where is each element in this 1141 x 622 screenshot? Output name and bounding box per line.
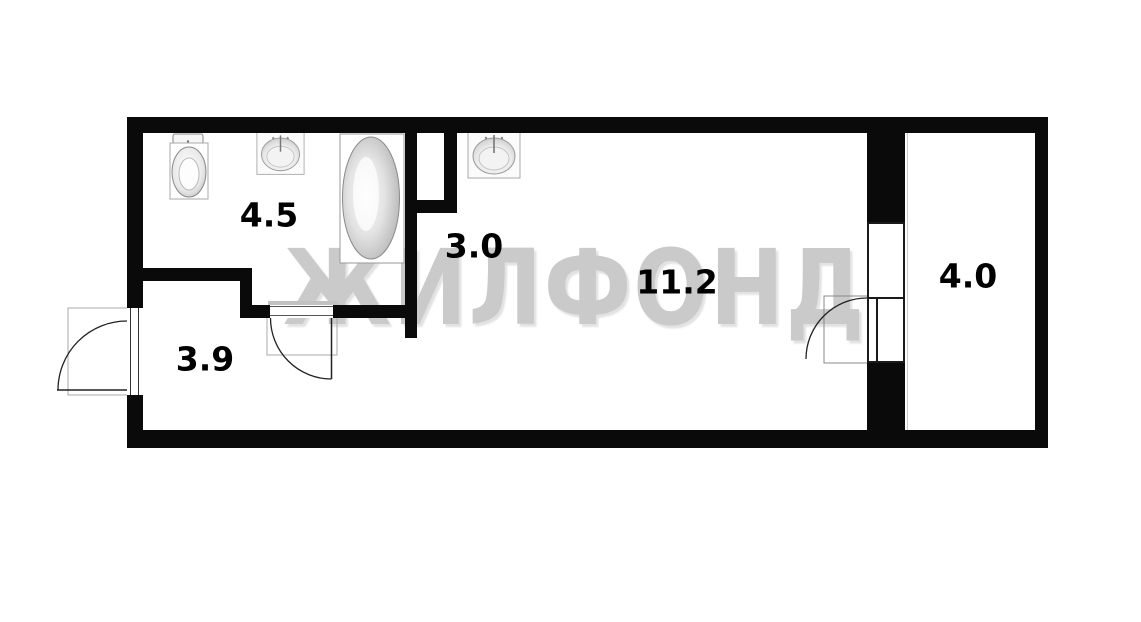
balcony-window-divider <box>869 297 903 299</box>
wall-bathroom-east <box>405 133 417 338</box>
wall-duct-south <box>405 200 457 213</box>
bathtub-icon <box>338 132 407 266</box>
balcony-door-unit <box>867 222 905 363</box>
wall-balcony-lower <box>867 363 905 430</box>
room-label-hallway: 3.9 <box>176 340 234 379</box>
door-swing-icon <box>45 300 135 400</box>
bathroom-door-lintel <box>268 301 338 305</box>
room-label-bathroom: 4.5 <box>240 196 298 235</box>
room-label-balcony: 4.0 <box>939 257 997 296</box>
toilet-icon <box>165 130 215 205</box>
room-label-living-room: 11.2 <box>636 263 717 302</box>
wall-outer-right <box>1035 117 1048 448</box>
wall-outer-left-lower <box>127 395 143 448</box>
wall-outer-top <box>127 117 1048 133</box>
balcony-glazing-line <box>907 133 908 430</box>
entry-door-frame-line <box>138 308 139 395</box>
sink-icon <box>467 130 521 180</box>
room-label-corridor: 3.0 <box>445 227 503 266</box>
entry-door-frame-line <box>130 308 131 395</box>
sink-icon <box>256 130 305 177</box>
floor-plan: ЖИЛФОНД <box>0 0 1141 622</box>
wall-bathroom-south-left <box>240 305 270 318</box>
bathroom-door-frame-line <box>270 315 333 316</box>
wall-outer-bottom <box>127 430 1048 448</box>
bathroom-door-frame-line <box>270 306 333 307</box>
wall-bathroom-south-upper <box>143 268 252 281</box>
balcony-door-leaf <box>876 299 878 361</box>
wall-outer-left-upper <box>127 117 143 308</box>
wall-balcony-upper <box>867 133 905 222</box>
